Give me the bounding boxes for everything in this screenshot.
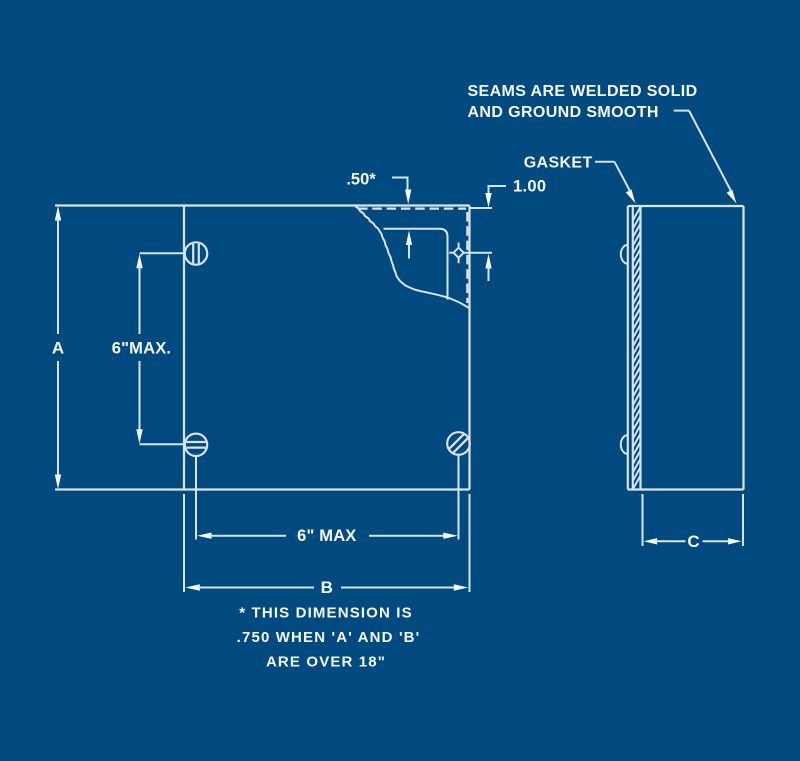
svg-text:6"MAX.: 6"MAX. xyxy=(112,339,171,357)
svg-text:GASKET: GASKET xyxy=(524,155,593,172)
svg-text:B: B xyxy=(321,578,333,597)
svg-text:.750 WHEN 'A' AND 'B': .750 WHEN 'A' AND 'B' xyxy=(237,629,421,646)
svg-text:1.00: 1.00 xyxy=(513,178,546,196)
svg-text:A: A xyxy=(52,338,64,357)
svg-text:C: C xyxy=(687,532,699,551)
svg-text:ARE OVER 18": ARE OVER 18" xyxy=(266,653,386,670)
svg-text:6" MAX: 6" MAX xyxy=(297,527,356,545)
svg-text:AND GROUND SMOOTH: AND GROUND SMOOTH xyxy=(468,104,659,121)
svg-text:* THIS DIMENSION IS: * THIS DIMENSION IS xyxy=(239,605,413,622)
svg-text:SEAMS ARE WELDED SOLID: SEAMS ARE WELDED SOLID xyxy=(468,83,698,100)
svg-text:.50*: .50* xyxy=(346,171,376,189)
